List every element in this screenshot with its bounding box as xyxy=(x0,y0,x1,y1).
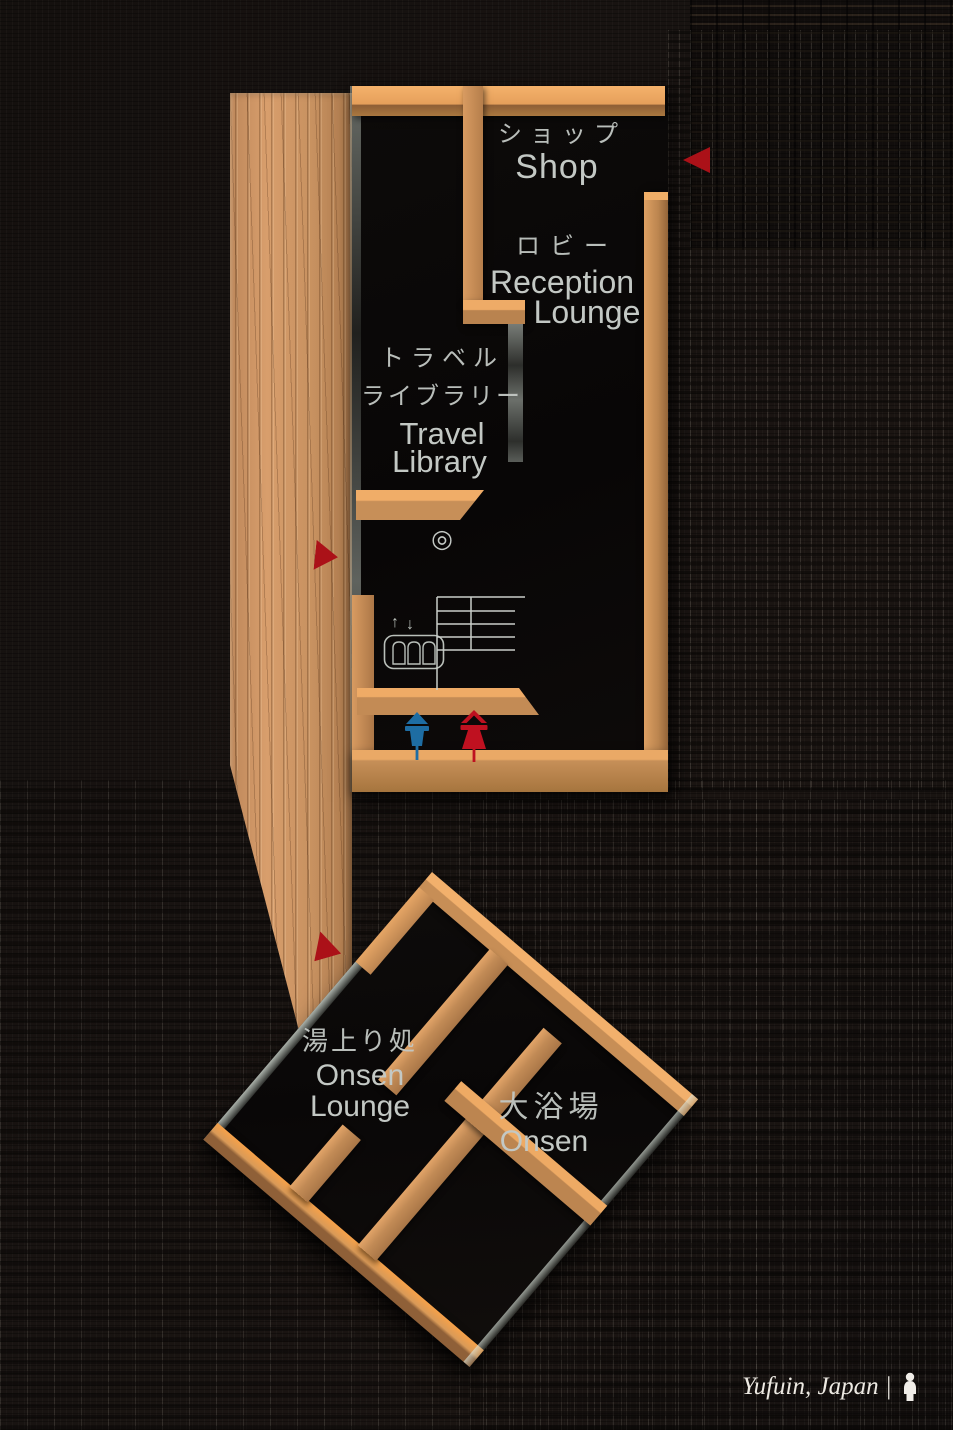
elevator-up-arrow-icon: ↑ xyxy=(391,614,399,632)
onsen-bath-label-jp: 大浴場 xyxy=(462,1092,640,1124)
wall-streaks-right xyxy=(668,30,953,790)
wood-wall-shelf-upper xyxy=(356,490,484,520)
onsen-lounge-label-jp: 湯上り処 xyxy=(278,1028,442,1055)
wood-wall-left-lower xyxy=(352,595,374,752)
onsen-lounge-label-en1: Onsen xyxy=(278,1060,442,1092)
current-location-marker-icon: ◎ xyxy=(412,526,472,552)
wood-wall-top xyxy=(352,86,665,116)
upper-floor-map-panel: ショップ Shop ロビー Reception Lounge トラベル ライブラ… xyxy=(352,86,668,792)
stairs-icon xyxy=(435,594,527,692)
restroom-female-icon xyxy=(459,710,489,762)
wall-weave-texture xyxy=(690,0,953,250)
travel-library-label-jp2: ライブラリー xyxy=(342,384,542,409)
wood-wall-shelf-lower xyxy=(357,688,539,715)
shop-label-en: Shop xyxy=(462,150,652,186)
travel-library-label-jp1: トラベル xyxy=(352,346,532,371)
elevator-down-arrow-icon: ↓ xyxy=(406,616,414,634)
shop-label-jp: ショップ xyxy=(462,122,662,147)
floor-map-sign-photo: ショップ Shop ロビー Reception Lounge トラベル ライブラ… xyxy=(0,0,953,1430)
watermark-text: Yufuin, Japan | xyxy=(742,1373,892,1401)
photo-watermark: Yufuin, Japan | xyxy=(742,1372,920,1402)
wood-plank xyxy=(230,93,352,1050)
travel-library-label-en2: Library xyxy=(347,446,532,479)
restroom-male-icon xyxy=(403,711,431,761)
reception-lounge-label-en: Lounge xyxy=(492,296,682,330)
lobby-label-jp: ロビー xyxy=(472,234,662,259)
direction-arrow-left-icon xyxy=(683,147,710,173)
wood-wall-bottom xyxy=(352,750,668,792)
onsen-lounge-label-en2: Lounge xyxy=(278,1091,442,1123)
photographer-logo-icon xyxy=(900,1372,920,1402)
onsen-bath-label-en: Onsen xyxy=(460,1126,628,1158)
